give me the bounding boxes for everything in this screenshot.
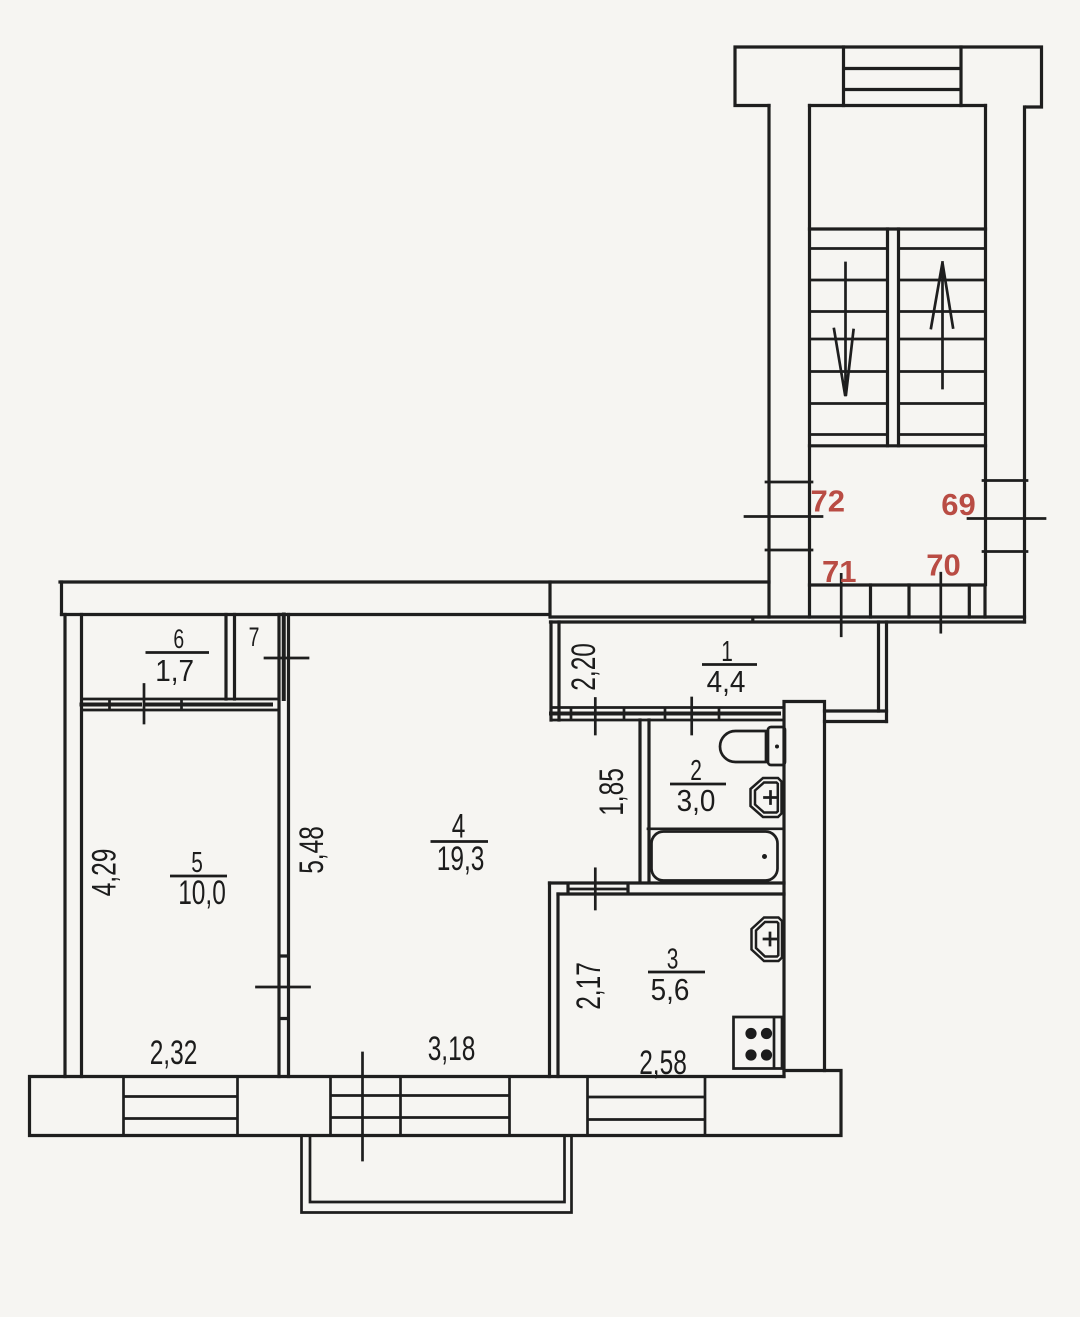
svg-text:3,0: 3,0: [677, 784, 716, 819]
svg-text:3: 3: [667, 943, 679, 975]
svg-text:2,20: 2,20: [565, 643, 603, 691]
svg-text:5,6: 5,6: [651, 973, 690, 1008]
svg-text:71: 71: [822, 554, 856, 589]
svg-text:69: 69: [941, 487, 975, 522]
svg-text:1,85: 1,85: [593, 768, 631, 816]
svg-text:7: 7: [249, 622, 260, 652]
svg-text:2: 2: [690, 755, 702, 787]
svg-text:6: 6: [173, 624, 184, 654]
svg-text:4,4: 4,4: [707, 665, 746, 700]
svg-text:1: 1: [721, 636, 733, 668]
svg-text:2,17: 2,17: [570, 962, 608, 1010]
svg-text:5,48: 5,48: [293, 826, 331, 874]
svg-text:3,18: 3,18: [428, 1030, 476, 1068]
svg-text:2,58: 2,58: [639, 1044, 687, 1082]
svg-text:19,3: 19,3: [437, 840, 485, 878]
svg-text:70: 70: [926, 548, 960, 583]
svg-text:10,0: 10,0: [178, 874, 226, 912]
svg-text:1,7: 1,7: [155, 654, 194, 689]
svg-text:72: 72: [810, 483, 844, 518]
svg-text:4,29: 4,29: [86, 849, 124, 897]
svg-text:2,32: 2,32: [150, 1034, 198, 1072]
